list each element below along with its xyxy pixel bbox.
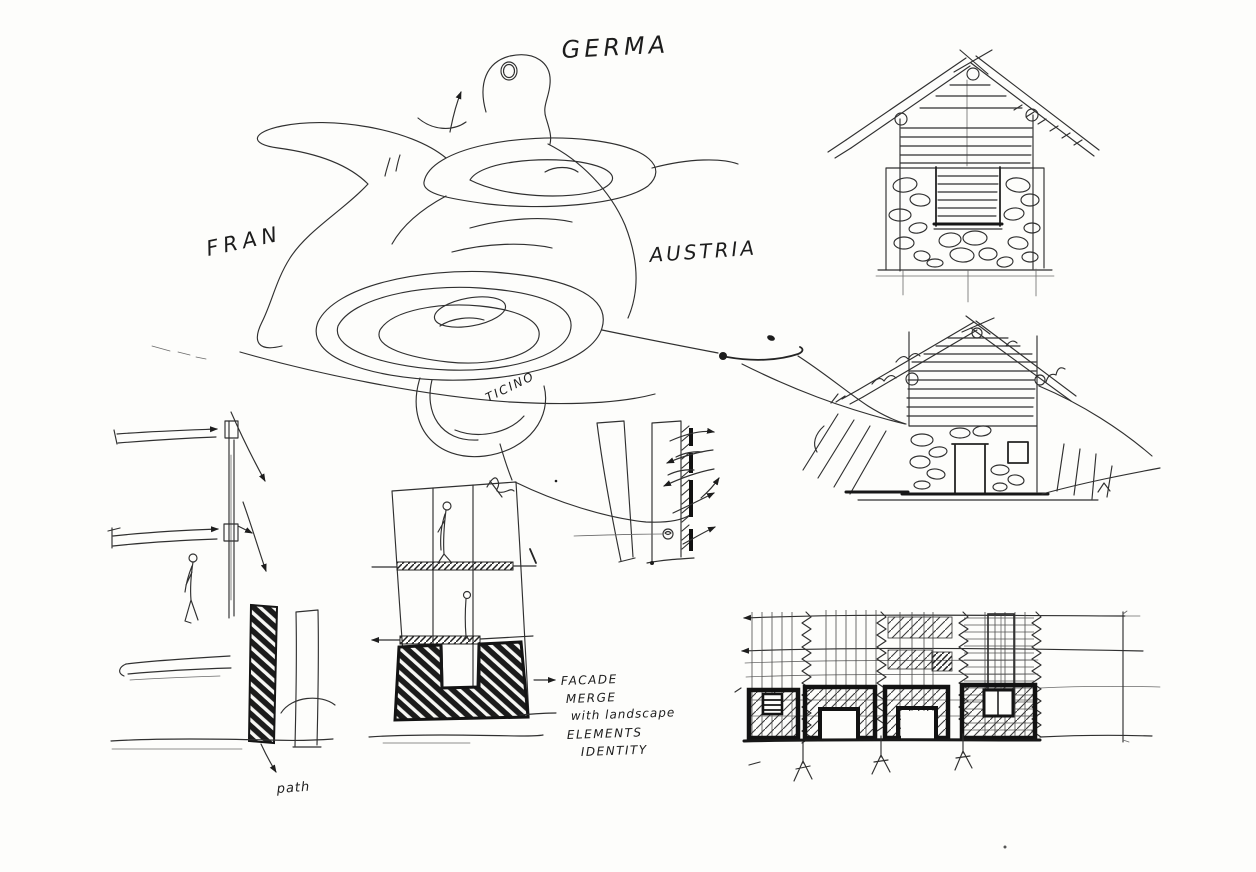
scribble-note	[487, 478, 514, 497]
path-arrow	[261, 744, 276, 772]
cantilever-arrow-middle	[108, 524, 252, 548]
hut2-door	[952, 444, 988, 494]
annotation-line-3: with landscape	[571, 705, 676, 723]
human-figure	[185, 554, 198, 623]
detail-columns	[597, 421, 681, 562]
map-tail-to-hillside	[602, 330, 906, 424]
ground-line	[369, 735, 543, 737]
label-ticino: TICINO	[483, 369, 537, 405]
swing-arc	[281, 698, 335, 713]
sketch-canvas: GERMA FRAN AUSTRIA TICINO	[0, 0, 1256, 872]
unit-plans	[749, 685, 1035, 741]
poche-u-base	[395, 642, 528, 720]
cantilever-arrow-upper	[114, 421, 238, 444]
annotation-line-4: ELEMENTS	[567, 725, 643, 742]
annotation-line-1: FACADE	[561, 672, 618, 688]
alpine-region-map-sketch: GERMA FRAN AUSTRIA TICINO	[152, 30, 906, 522]
hut2-window	[1008, 442, 1028, 463]
human-figure-small	[462, 592, 471, 643]
label-austria: AUSTRIA	[647, 236, 758, 268]
facade-line	[229, 421, 234, 618]
opening-slats	[938, 176, 998, 216]
floor-slab	[120, 656, 231, 680]
facade-ventilation-detail-sketch	[574, 421, 719, 565]
hut-hillside-elevation-sketch	[742, 316, 1160, 500]
diagonal-guide-arrow-1	[231, 412, 265, 481]
map-contour-lines	[152, 55, 738, 522]
sketch-sheet: GERMA FRAN AUSTRIA TICINO	[0, 0, 1256, 872]
upper-hatch-panels	[888, 617, 952, 671]
courtyard-section-sketch	[369, 478, 557, 743]
hut2-walls-siding	[907, 332, 1037, 492]
stone-ovals	[889, 176, 1040, 268]
annotation-line-2: MERGE	[566, 690, 617, 706]
site-dot	[719, 352, 727, 360]
annotation-line-5: IDENTITY	[581, 743, 648, 759]
cavity-hatch	[682, 426, 689, 549]
ground-line	[111, 739, 333, 741]
hut2-roof	[831, 316, 1076, 404]
side-column	[293, 610, 321, 747]
hut-front-elevation-sketch	[828, 50, 1099, 302]
label-path: path	[275, 780, 311, 797]
label-france: FRAN	[204, 221, 284, 260]
hut1-stone-base	[876, 167, 1054, 302]
human-figure	[438, 502, 451, 563]
hut1-roof	[828, 50, 1099, 158]
ridge-peg-circle	[967, 68, 979, 80]
diagonal-guide-arrow-2	[243, 502, 266, 571]
site-elevation-sketch	[735, 610, 1160, 849]
poche-wall	[249, 605, 277, 743]
base-line	[744, 740, 1040, 741]
ink-speck	[1004, 846, 1007, 849]
building-section-sketch: path	[108, 412, 335, 797]
annotation-block: FACADE MERGE with landscape ELEMENTS IDE…	[520, 672, 675, 759]
label-germany: GERMA	[561, 30, 670, 64]
